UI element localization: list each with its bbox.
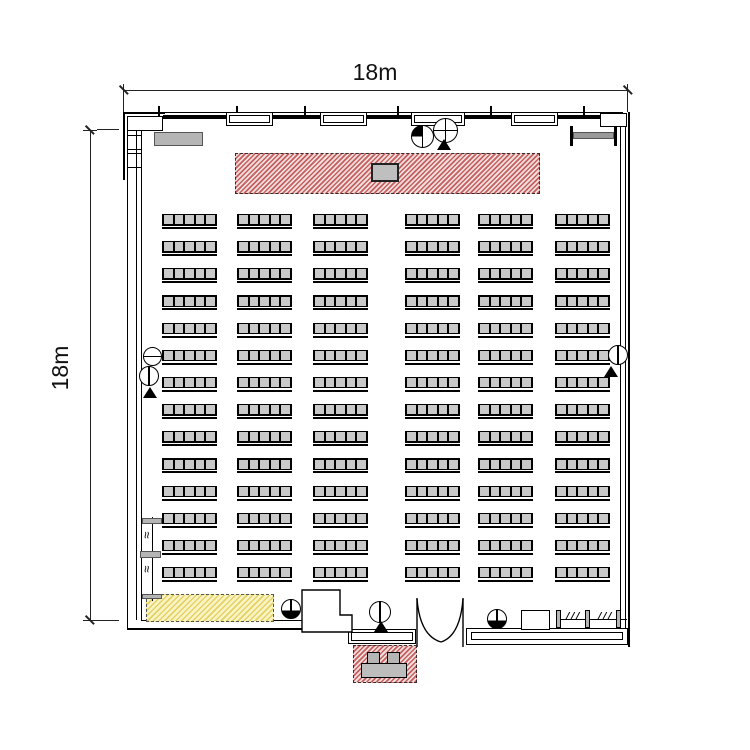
downlight-icon bbox=[281, 599, 301, 619]
ceiling-light-icon bbox=[411, 125, 434, 148]
railing-post bbox=[585, 610, 590, 628]
ceiling-light-icon bbox=[369, 601, 391, 623]
railing-post bbox=[556, 610, 561, 628]
break-mark-icon: /// bbox=[597, 611, 612, 622]
av-console bbox=[361, 663, 407, 678]
ceiling-light-icon bbox=[143, 347, 162, 366]
break-mark-icon: /// bbox=[565, 611, 580, 622]
door-leaf-arc bbox=[441, 599, 463, 642]
speaker-triangle-icon bbox=[437, 139, 451, 150]
speaker-triangle-icon bbox=[143, 387, 157, 398]
speaker-triangle-icon bbox=[604, 366, 618, 377]
speaker-triangle-icon bbox=[374, 621, 388, 632]
equipment-box bbox=[521, 610, 550, 630]
door-leaf-arc bbox=[417, 599, 441, 642]
downlight-icon bbox=[487, 609, 507, 629]
railing-post bbox=[616, 610, 621, 628]
floor-plan: 18m 18m bbox=[0, 0, 750, 750]
door-and-alcove-overlay bbox=[0, 0, 750, 750]
ceiling-light-icon bbox=[139, 366, 159, 386]
alcove bbox=[302, 590, 352, 632]
ceiling-light-icon bbox=[608, 345, 628, 365]
